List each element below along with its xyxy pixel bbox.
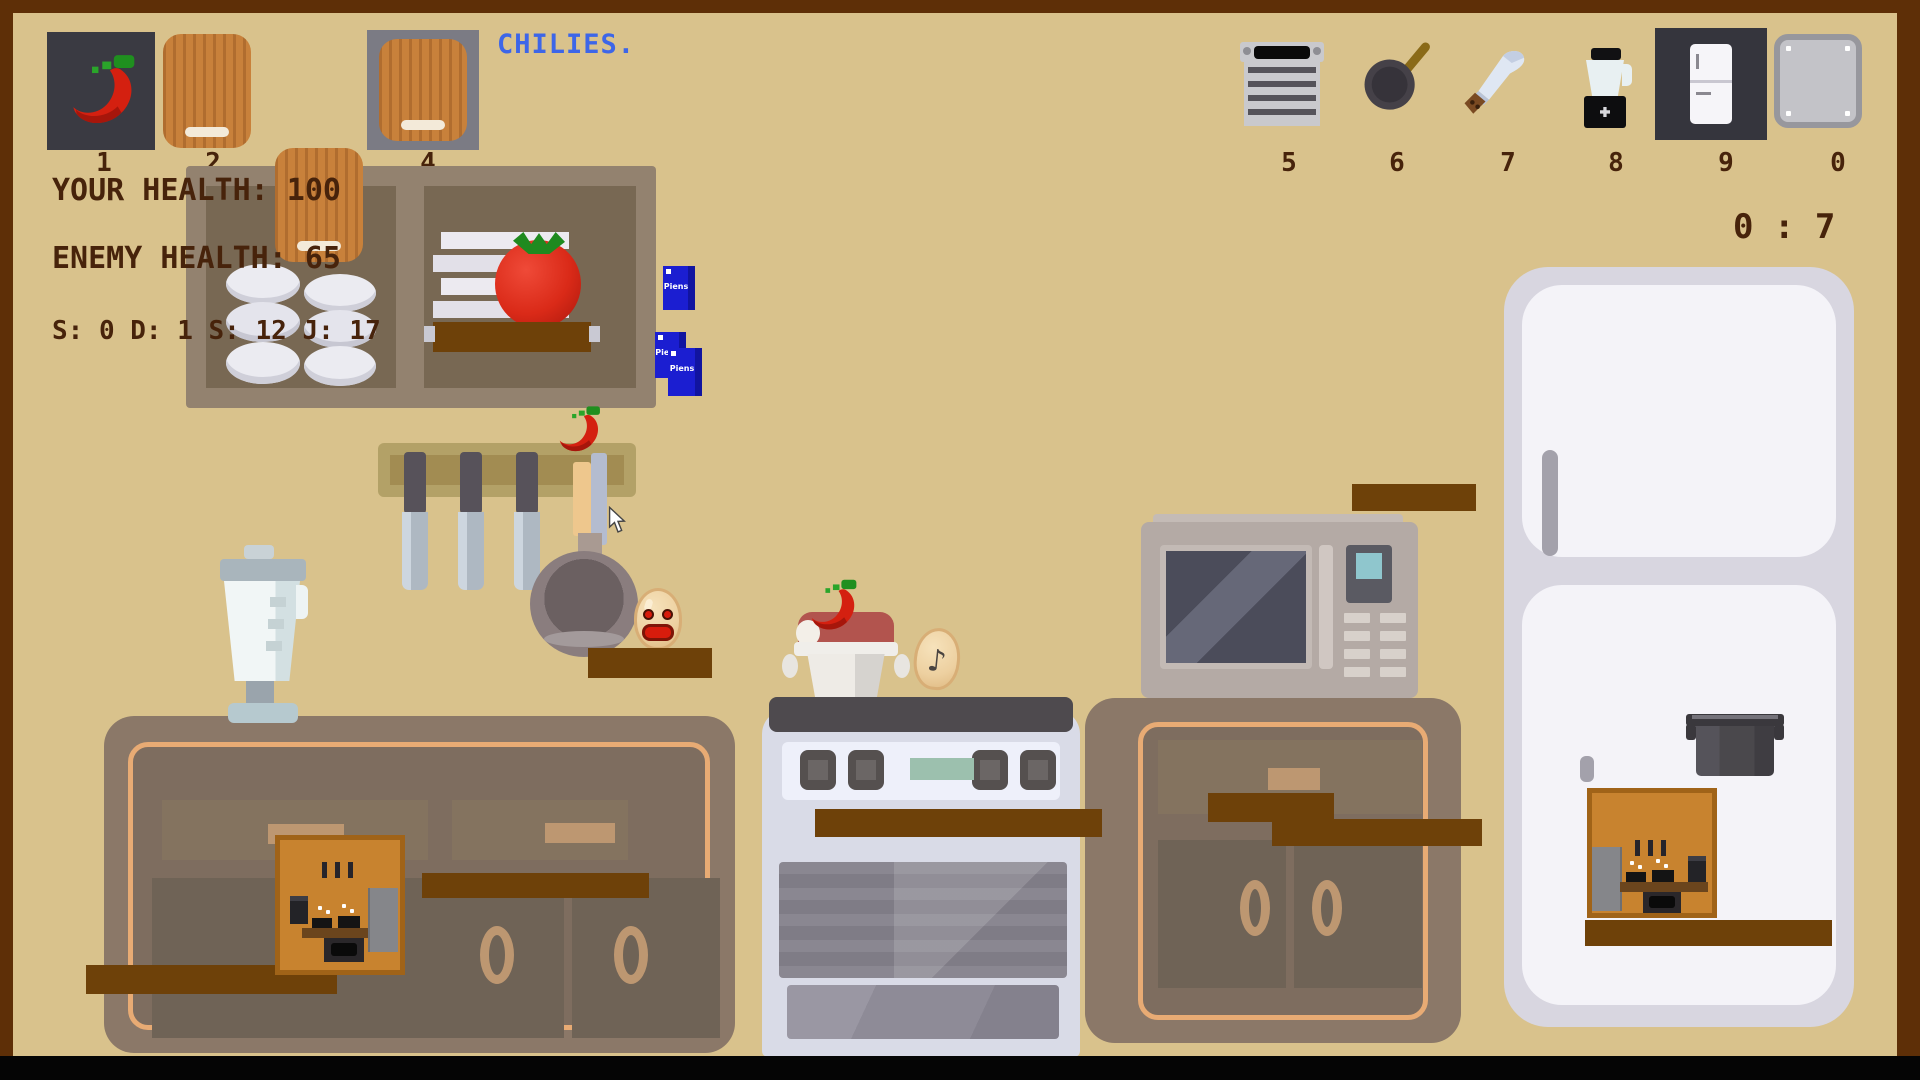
your-health-text: YOUR HEALTH: 100 (52, 176, 341, 206)
steam (1630, 861, 1634, 865)
stockpot-lid-highlight (1692, 715, 1778, 719)
mini-hook (1648, 840, 1653, 856)
blender-lid (220, 559, 306, 581)
mini-counter (1620, 882, 1708, 892)
hotbar-slot-4[interactable] (367, 30, 479, 150)
game-screen: Piens Piens Piens ♪ (0, 0, 1920, 1080)
microwave-window (1160, 545, 1312, 669)
mini-kitchen-box[interactable] (1587, 788, 1717, 918)
steam (342, 904, 346, 908)
oven-door[interactable] (779, 862, 1067, 978)
slot-number-8: 8 (1601, 150, 1631, 176)
stockpot-handle (1686, 724, 1696, 740)
cutting-board-icon (379, 39, 467, 141)
milk-carton-label: Piens (668, 364, 696, 373)
plate-rivet (1786, 46, 1791, 51)
stove-knob-center (808, 760, 828, 780)
stockpot-body (1696, 726, 1774, 776)
held-knife-blade (591, 453, 607, 545)
blender-mark (266, 641, 282, 651)
mini-hook (348, 862, 353, 878)
slot-number-9: 9 (1711, 150, 1741, 176)
hanging-frying-pan[interactable] (530, 551, 638, 657)
milk-carton-label: Piens (663, 282, 689, 291)
frame-top (0, 0, 1920, 13)
chili-icon (801, 576, 863, 636)
left-counter-plank (422, 873, 649, 898)
grater-screw (1313, 47, 1321, 55)
mini-blender (290, 896, 308, 924)
mini-pan (1652, 870, 1674, 882)
stats-text: S: 0 D: 1 S: 12 J: 17 (52, 318, 381, 344)
grater-top-slot (1254, 46, 1310, 59)
blender[interactable] (218, 545, 308, 725)
mini-oven-window (1649, 896, 1675, 908)
hotbar-slot-2[interactable] (163, 34, 251, 148)
stove[interactable] (762, 692, 1080, 1057)
oven-drawer[interactable] (787, 985, 1059, 1039)
knife-handle[interactable] (404, 452, 426, 514)
microwave-button[interactable] (1380, 649, 1406, 659)
fridge-lower-handle[interactable] (1580, 756, 1594, 782)
plate-rivet (1786, 111, 1791, 116)
frame-bottom (0, 1056, 1920, 1080)
microwave-button[interactable] (1344, 613, 1370, 623)
milk-carton[interactable]: Piens (668, 348, 702, 396)
mini-hook (1635, 840, 1640, 856)
stove-knob-center (856, 760, 876, 780)
game-title: CHILIES. (497, 31, 635, 58)
drawer-handle[interactable] (545, 823, 615, 843)
drawer-handle[interactable] (1268, 768, 1320, 790)
fridge-plank (1585, 920, 1832, 946)
microwave-button[interactable] (1344, 667, 1370, 677)
blender-base (228, 703, 298, 723)
chili-icon (551, 403, 605, 457)
microwave-button[interactable] (1344, 649, 1370, 659)
steam (1664, 864, 1668, 868)
blender-icon-jar (1586, 60, 1624, 96)
blender-mark (270, 597, 286, 607)
knife-blade[interactable] (458, 512, 484, 590)
microwave-display-screen (1356, 553, 1382, 579)
stove-plank (815, 809, 1102, 837)
mini-hook (335, 862, 340, 878)
freezer-door[interactable] (1522, 285, 1836, 557)
stove-display (910, 758, 974, 780)
egg-smile (642, 624, 674, 641)
hotbar-slot-1[interactable] (47, 32, 155, 150)
fridge-icon-split (1690, 80, 1732, 83)
plate-rivet (1845, 46, 1850, 51)
door-handle[interactable] (614, 926, 648, 984)
door-handle[interactable] (480, 926, 514, 984)
milk-carton[interactable]: Piens (663, 266, 695, 310)
grater-slats (1248, 67, 1316, 119)
slot-number-5: 5 (1274, 150, 1304, 176)
blender-icon-handle (1622, 64, 1632, 86)
hotbar-slot-5[interactable] (1240, 42, 1324, 128)
slot-number-0: 0 (1823, 150, 1853, 176)
machete-icon (1454, 38, 1538, 130)
microwave-plank (1352, 484, 1476, 511)
hotbar-slot-0[interactable] (1774, 34, 1862, 128)
mouse-cursor (608, 506, 628, 534)
microwave-window-glare (1160, 551, 1312, 663)
tomato[interactable] (495, 232, 581, 328)
microwave-buttons[interactable] (1344, 613, 1406, 679)
held-knife-handle (573, 462, 591, 536)
knife-handle[interactable] (516, 452, 538, 514)
pot-handle (894, 654, 910, 678)
microwave-button[interactable] (1380, 667, 1406, 677)
steam (350, 909, 354, 913)
stockpot[interactable] (1686, 712, 1784, 776)
frame-right (1897, 0, 1920, 1080)
hotbar-slot-8[interactable] (1578, 48, 1634, 128)
mini-hook (322, 862, 327, 878)
microwave-button[interactable] (1380, 631, 1406, 641)
chili-icon (60, 50, 142, 132)
plate (304, 274, 376, 312)
stove-knob-center (1028, 760, 1048, 780)
right-counter (1085, 698, 1461, 1043)
frying-pan-icon (1352, 38, 1438, 124)
steam (1638, 865, 1642, 869)
stockpot-handle (1774, 724, 1784, 740)
slot-number-7: 7 (1493, 150, 1523, 176)
pot-handle (782, 654, 798, 678)
mini-blender (1688, 856, 1706, 882)
refrigerator-icon (1690, 44, 1732, 124)
microwave-door-handle[interactable] (1319, 545, 1333, 669)
door-handle[interactable] (1312, 880, 1342, 936)
stove-knob-center (980, 760, 1000, 780)
pot-rim (794, 642, 898, 656)
plate (226, 342, 300, 384)
stove-knob[interactable] (972, 750, 1008, 790)
mini-oven-window (331, 943, 357, 956)
frame-left (0, 0, 13, 1080)
right-counter-plank (1208, 793, 1334, 822)
mini-pan (1626, 872, 1646, 882)
egg-platform-plank (588, 648, 712, 678)
mini-hook (1661, 840, 1666, 856)
grater-screw (1243, 47, 1251, 55)
knife-handle[interactable] (460, 452, 482, 514)
stove-knob[interactable] (848, 750, 884, 790)
microwave-button[interactable] (1344, 631, 1370, 641)
blender-jar (224, 581, 300, 681)
knife-blade[interactable] (402, 512, 428, 590)
music-note-icon: ♪ (925, 643, 948, 680)
falling-chili[interactable] (551, 403, 605, 457)
mini-fridge (1592, 847, 1622, 911)
oven-door-glare (894, 862, 1067, 978)
blender-stem (246, 681, 274, 703)
mini-pan (338, 916, 360, 928)
blender-icon-button (1600, 107, 1610, 117)
fridge-handle[interactable] (1542, 450, 1558, 556)
door-handle[interactable] (1240, 880, 1270, 936)
timer-text: 0 : 7 (1733, 210, 1835, 244)
fridge-icon-handle (1696, 54, 1699, 69)
blender-cap (244, 545, 274, 559)
stove-knob[interactable] (1020, 750, 1056, 790)
blender-mark (268, 619, 284, 629)
right-counter-plank (1272, 819, 1482, 846)
egg-character[interactable] (634, 588, 682, 650)
enemy-health-text: ENEMY HEALTH: 65 (52, 244, 341, 274)
blender-icon-base (1584, 96, 1626, 128)
plate (304, 346, 376, 386)
mini-pan (312, 918, 332, 928)
mini-oven (324, 938, 364, 962)
mini-oven (1643, 892, 1681, 913)
stove-top (769, 697, 1073, 732)
fridge-icon-handle2 (1696, 92, 1711, 95)
mini-kitchen-box[interactable] (275, 835, 405, 975)
steam (1656, 859, 1660, 863)
microwave[interactable] (1141, 514, 1418, 698)
microwave-button[interactable] (1380, 613, 1406, 623)
plate-rivet (1845, 111, 1850, 116)
hotbar-slot-7[interactable] (1454, 38, 1538, 130)
hotbar-slot-9[interactable] (1655, 28, 1767, 140)
grater-body (1244, 62, 1320, 126)
pan-rim-highlight (544, 631, 624, 647)
stove-knob[interactable] (800, 750, 836, 790)
blender-icon-lid (1591, 48, 1621, 60)
cabinet-shelf-plank (433, 322, 591, 352)
grater-icon (1240, 42, 1324, 62)
microwave-display (1346, 545, 1392, 603)
steam (318, 906, 322, 910)
slot-number-6: 6 (1382, 150, 1412, 176)
hotbar-slot-6[interactable] (1352, 38, 1438, 124)
blender-handle (296, 585, 308, 619)
egg-eye (662, 609, 673, 620)
mini-fridge (368, 888, 398, 952)
steam (326, 910, 330, 914)
egg-eye (643, 609, 654, 620)
